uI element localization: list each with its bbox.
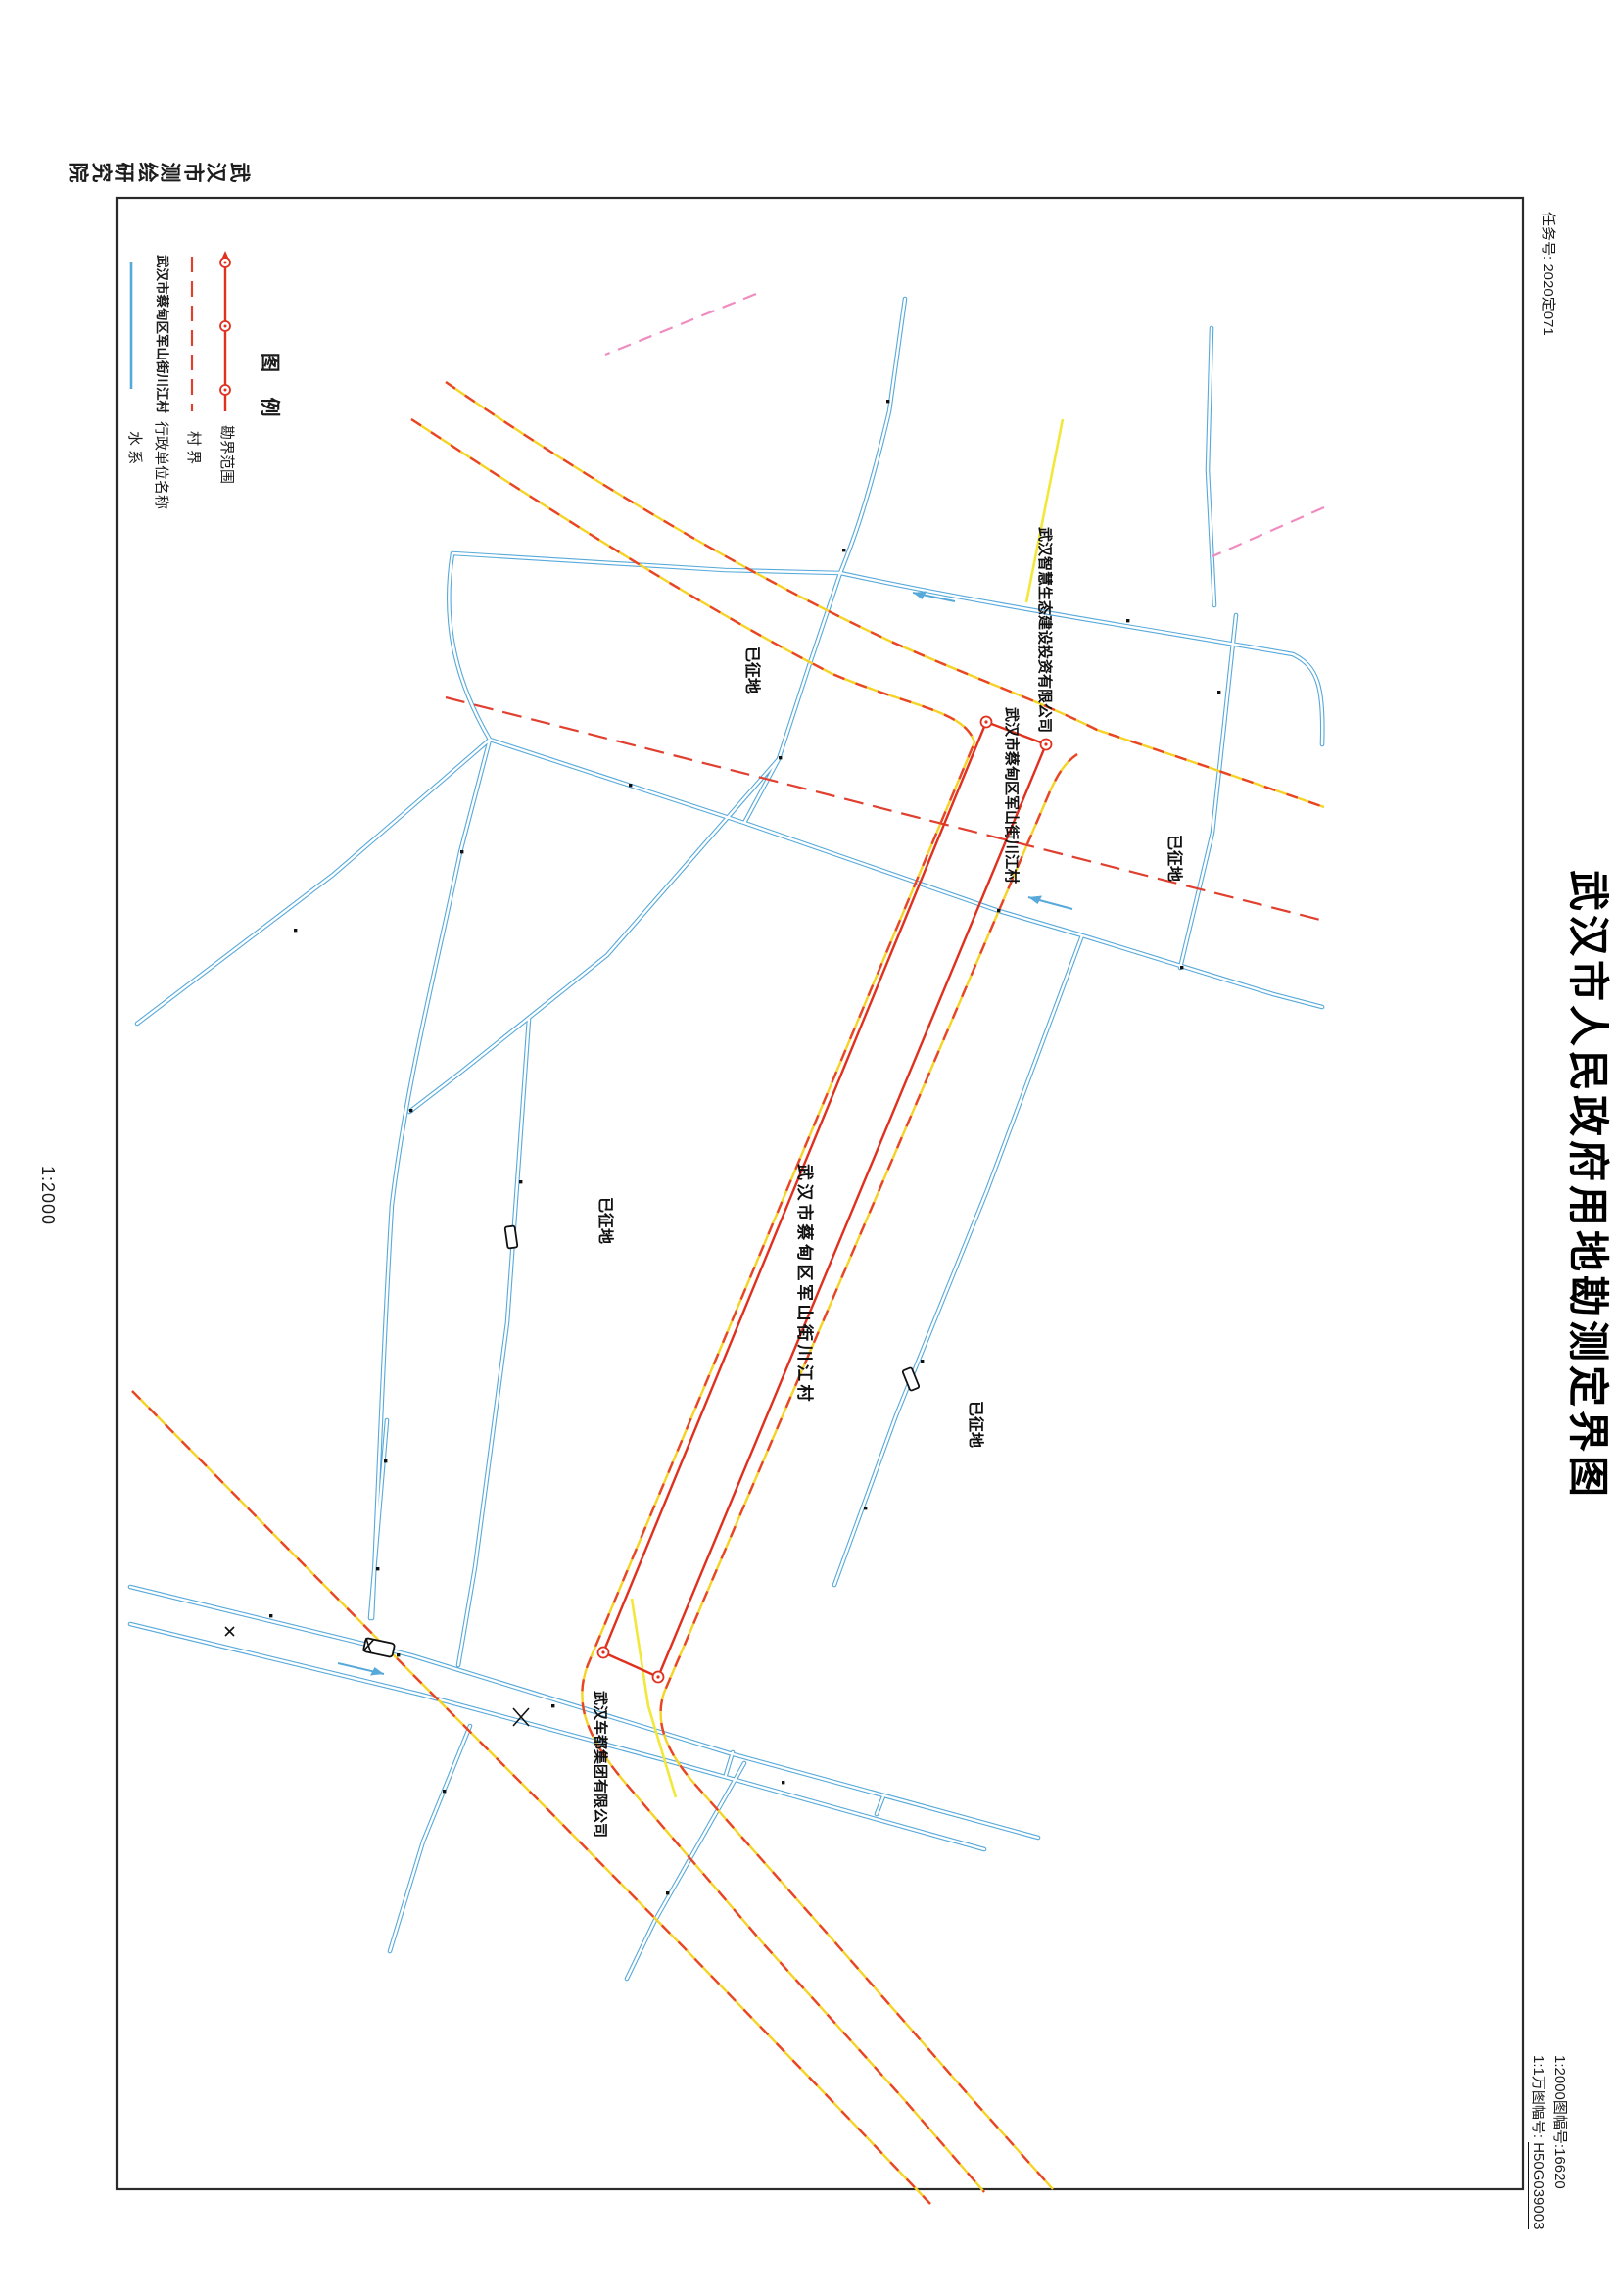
legend-item-water-label: 水 系 [127, 431, 142, 464]
streams-layer [130, 299, 1322, 1979]
sheet-title: 武汉市人民政府用地勘测定界图 [1567, 870, 1608, 1501]
map-canvas [0, 0, 1616, 2296]
map-label: 武汉车都集团有限公司 [593, 1691, 607, 1838]
task-number: 任务号: 2020定071 [1541, 212, 1555, 336]
legend-item-admin-label: 行政单位名称 [154, 421, 168, 509]
map-label: 已征地 [1165, 835, 1181, 882]
flow-arrows [338, 592, 1072, 1676]
map-sheet: 武汉市测绘研究院 任务号: 2020定071 武汉市人民政府用地勘测定界图 1:… [0, 0, 1616, 2296]
yellow-lines [632, 419, 1063, 1797]
survey-points [269, 400, 1220, 1894]
sheet-number-10000-label: 1:1万图幅号: [1530, 2055, 1546, 2142]
map-label: 已征地 [743, 646, 759, 694]
legend-admin-sample: 武汉市蔡甸区军山街川江村 [156, 255, 169, 413]
sheet-number-10000: 1:1万图幅号: H50G039003 [1531, 2055, 1545, 2229]
pink-boundary-dashed [605, 294, 1324, 556]
map-label: 武汉市蔡甸区军山街川江村 [1004, 707, 1019, 884]
map-frame [117, 198, 1523, 2189]
legend-item-survey-label: 勘界范围 [219, 425, 234, 484]
map-label: 武汉市蔡甸区军山街川江村 [796, 1164, 813, 1405]
legend-title: 图 例 [260, 353, 279, 427]
legend-symbols [131, 251, 230, 411]
sheet-number-2000: 1:2000图幅号:16620 [1552, 2055, 1567, 2189]
map-label: 已征地 [596, 1197, 612, 1244]
map-label: 武汉智慧生态建设投资有限公司 [1037, 527, 1052, 733]
scale-label: 1:2000 [39, 1166, 57, 1225]
sheet-number-10000-value: H50G039003 [1528, 2142, 1546, 2229]
village-boundary-dashed [446, 697, 1324, 921]
expropriation-boundary-layer [132, 382, 1324, 2204]
legend-item-village-label: 村 界 [186, 431, 201, 464]
agency-stamp: 武汉市测绘研究院 [71, 161, 254, 184]
map-label: 已征地 [967, 1401, 982, 1448]
